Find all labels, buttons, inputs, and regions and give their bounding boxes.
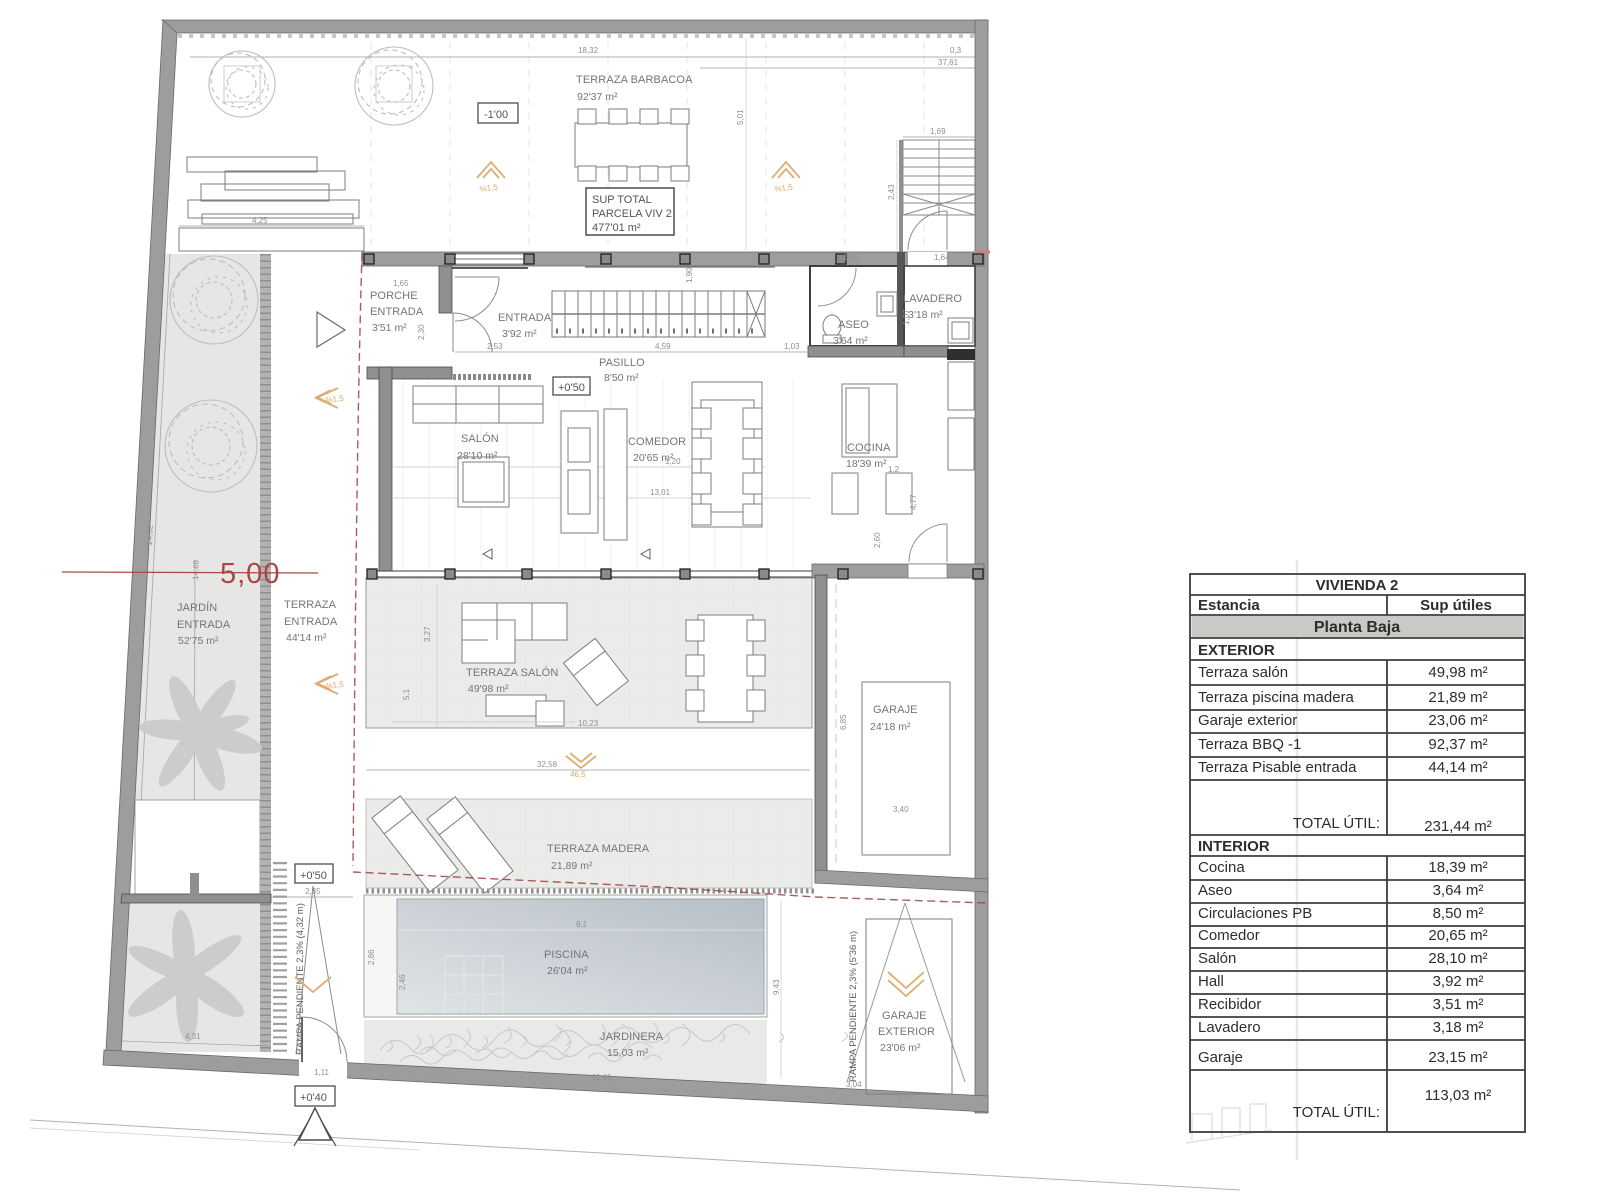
- svg-text:3,40: 3,40: [893, 805, 909, 814]
- svg-text:Terraza piscina madera: Terraza piscina madera: [1198, 689, 1355, 706]
- svg-text:Lavadero: Lavadero: [1198, 1019, 1261, 1036]
- svg-text:0,3: 0,3: [950, 46, 962, 55]
- svg-text:231,44 m²: 231,44 m²: [1424, 818, 1492, 835]
- svg-text:5,1: 5,1: [402, 688, 411, 700]
- svg-text:+0'50: +0'50: [300, 870, 327, 882]
- svg-text:Circulaciones PB: Circulaciones PB: [1198, 905, 1312, 922]
- svg-text:1,65: 1,65: [393, 279, 409, 288]
- svg-text:Terraza Pisable entrada: Terraza Pisable entrada: [1198, 759, 1357, 776]
- svg-text:VIVIENDA 2: VIVIENDA 2: [1316, 577, 1399, 594]
- svg-text:92,37 m²: 92,37 m²: [1428, 736, 1487, 753]
- svg-text:JARDINERA: JARDINERA: [600, 1031, 664, 1043]
- svg-text:18,32: 18,32: [578, 46, 599, 55]
- svg-text:SALÓN: SALÓN: [461, 432, 499, 445]
- svg-text:3,64 m²: 3,64 m²: [1433, 882, 1484, 899]
- svg-text:44'14 m²: 44'14 m²: [286, 632, 327, 644]
- svg-text:1,2: 1,2: [888, 465, 900, 474]
- svg-text:Sup útiles: Sup útiles: [1420, 597, 1492, 614]
- svg-text:6,85: 6,85: [839, 714, 848, 730]
- svg-text:5,00: 5,00: [220, 558, 280, 590]
- svg-text:18'39 m²: 18'39 m²: [846, 458, 887, 470]
- svg-text:3,18 m²: 3,18 m²: [1433, 1019, 1484, 1036]
- svg-text:24,02: 24,02: [145, 524, 155, 545]
- svg-text:3'18 m²: 3'18 m²: [908, 309, 943, 321]
- svg-text:TOTAL ÚTIL:: TOTAL ÚTIL:: [1293, 1104, 1380, 1121]
- svg-text:Garaje exterior: Garaje exterior: [1198, 712, 1297, 729]
- svg-text:3'92 m²: 3'92 m²: [502, 328, 537, 340]
- svg-text:2,97: 2,97: [898, 1093, 914, 1102]
- svg-text:3,27: 3,27: [423, 626, 432, 642]
- svg-text:Aseo: Aseo: [1198, 882, 1232, 899]
- svg-text:-1'00: -1'00: [484, 109, 508, 121]
- svg-text:2,86: 2,86: [367, 949, 376, 965]
- svg-text:Hall: Hall: [1198, 973, 1224, 990]
- svg-text:2,46: 2,46: [398, 974, 407, 990]
- svg-text:INTERIOR: INTERIOR: [1198, 838, 1270, 855]
- svg-text:28,10 m²: 28,10 m²: [1428, 950, 1487, 967]
- svg-text:11,41: 11,41: [592, 1073, 612, 1082]
- svg-text:EXTERIOR: EXTERIOR: [878, 1026, 935, 1038]
- svg-text:2,60: 2,60: [873, 532, 882, 548]
- svg-text:Estancia: Estancia: [1198, 597, 1260, 614]
- svg-text:Garaje: Garaje: [1198, 1049, 1243, 1066]
- svg-text:1,90: 1,90: [685, 267, 694, 283]
- svg-text:20'65 m²: 20'65 m²: [633, 452, 674, 464]
- svg-text:ENTRADA: ENTRADA: [284, 616, 338, 628]
- svg-text:TERRAZA BARBACOA: TERRAZA BARBACOA: [576, 74, 693, 86]
- svg-text:4,25: 4,25: [252, 216, 268, 225]
- svg-text:5,01: 5,01: [736, 109, 745, 125]
- svg-text:477'01 m²: 477'01 m²: [592, 222, 641, 234]
- svg-text:49,98 m²: 49,98 m²: [1428, 664, 1487, 681]
- svg-text:Comedor: Comedor: [1198, 927, 1260, 944]
- svg-text:2,35: 2,35: [305, 887, 321, 896]
- svg-text:TERRAZA MADERA: TERRAZA MADERA: [547, 843, 650, 855]
- svg-text:3,92 m²: 3,92 m²: [1433, 973, 1484, 990]
- svg-text:9,1: 9,1: [576, 920, 588, 929]
- svg-text:ENTRADA: ENTRADA: [498, 312, 552, 324]
- svg-text:Cocina: Cocina: [1198, 859, 1245, 876]
- svg-text:JARDÍN: JARDÍN: [177, 601, 217, 614]
- svg-text:52'75 m²: 52'75 m²: [178, 635, 219, 647]
- svg-text:3'51 m²: 3'51 m²: [372, 322, 407, 334]
- svg-text:23,06 m²: 23,06 m²: [1428, 712, 1487, 729]
- svg-text:GARAJE: GARAJE: [882, 1010, 927, 1022]
- svg-text:92'37 m²: 92'37 m²: [577, 91, 618, 103]
- svg-text:23'06 m²: 23'06 m²: [880, 1042, 921, 1054]
- svg-text:%1,5: %1,5: [325, 679, 345, 691]
- svg-text:LAVADERO: LAVADERO: [903, 293, 962, 305]
- svg-text:3,04: 3,04: [846, 1080, 862, 1089]
- svg-text:4,31: 4,31: [185, 1032, 201, 1041]
- svg-text:46,5: 46,5: [570, 770, 586, 779]
- svg-text:4,59: 4,59: [655, 342, 671, 351]
- svg-text:TOTAL ÚTIL:: TOTAL ÚTIL:: [1293, 815, 1380, 832]
- svg-text:10,23: 10,23: [578, 719, 599, 728]
- svg-text:37,61: 37,61: [938, 58, 959, 67]
- svg-text:1,07: 1,07: [902, 309, 911, 325]
- svg-text:2,43: 2,43: [887, 184, 896, 200]
- svg-text:+0'40: +0'40: [300, 1092, 327, 1104]
- svg-text:26'04 m²: 26'04 m²: [547, 965, 588, 977]
- svg-text:COMEDOR: COMEDOR: [628, 436, 686, 448]
- svg-text:1,03: 1,03: [784, 342, 800, 351]
- svg-text:%1,5: %1,5: [479, 182, 499, 194]
- svg-text:PORCHE: PORCHE: [370, 290, 418, 302]
- svg-text:32,58: 32,58: [537, 760, 558, 769]
- svg-text:4,77: 4,77: [909, 494, 918, 510]
- svg-text:23,15 m²: 23,15 m²: [1428, 1049, 1487, 1066]
- svg-text:28'10 m²: 28'10 m²: [457, 450, 498, 462]
- svg-text:Recibidor: Recibidor: [1198, 996, 1261, 1013]
- svg-text:49'98 m²: 49'98 m²: [468, 683, 509, 695]
- svg-text:8'50 m²: 8'50 m²: [604, 372, 639, 384]
- svg-text:GARAJE: GARAJE: [873, 704, 918, 716]
- svg-text:PISCINA: PISCINA: [544, 949, 589, 961]
- svg-text:1,69: 1,69: [930, 127, 946, 136]
- svg-text:1,64: 1,64: [934, 253, 950, 262]
- svg-text:%1,5: %1,5: [774, 182, 794, 194]
- svg-text:15,03 m²: 15,03 m²: [607, 1047, 649, 1059]
- svg-text:ENTRADA: ENTRADA: [370, 306, 424, 318]
- svg-text:3,51 m²: 3,51 m²: [1433, 996, 1484, 1013]
- svg-text:14,69: 14,69: [191, 559, 201, 580]
- svg-text:8,50 m²: 8,50 m²: [1433, 905, 1484, 922]
- svg-text:COCINA: COCINA: [847, 442, 891, 454]
- svg-text:RAMPA PENDIENTE 2,3% (5'36 m): RAMPA PENDIENTE 2,3% (5'36 m): [848, 931, 859, 1082]
- svg-text:20,65 m²: 20,65 m²: [1428, 927, 1487, 944]
- svg-text:%1,5: %1,5: [325, 393, 345, 405]
- svg-text:18,39 m²: 18,39 m²: [1428, 859, 1487, 876]
- svg-text:PARCELA VIV 2: PARCELA VIV 2: [592, 208, 672, 220]
- svg-text:13,01: 13,01: [650, 488, 671, 497]
- svg-text:TERRAZA: TERRAZA: [284, 599, 337, 611]
- svg-text:TERRAZA SALÓN: TERRAZA SALÓN: [466, 666, 558, 679]
- svg-text:3'64 m²: 3'64 m²: [833, 335, 868, 347]
- svg-text:113,03 m²: 113,03 m²: [1425, 1087, 1491, 1104]
- svg-text:9,43: 9,43: [772, 979, 781, 995]
- svg-text:Terraza salón: Terraza salón: [1198, 664, 1288, 681]
- svg-text:21,89 m²: 21,89 m²: [1428, 689, 1487, 706]
- svg-text:ASEO: ASEO: [838, 319, 869, 331]
- svg-text:21,89 m²: 21,89 m²: [551, 860, 593, 872]
- svg-text:Terraza BBQ -1: Terraza BBQ -1: [1198, 736, 1301, 753]
- svg-text:44,14 m²: 44,14 m²: [1428, 759, 1487, 776]
- svg-text:2,30: 2,30: [417, 324, 426, 340]
- svg-text:24'18 m²: 24'18 m²: [870, 721, 911, 733]
- svg-text:1,11: 1,11: [314, 1068, 330, 1077]
- svg-text:SUP TOTAL: SUP TOTAL: [592, 194, 652, 206]
- svg-text:ENTRADA: ENTRADA: [177, 619, 231, 631]
- svg-text:2,53: 2,53: [487, 342, 503, 351]
- svg-text:EXTERIOR: EXTERIOR: [1198, 642, 1275, 659]
- svg-text:+0'50: +0'50: [558, 382, 585, 394]
- svg-text:Salón: Salón: [1198, 950, 1236, 967]
- svg-text:1,95: 1,95: [843, 253, 859, 262]
- svg-text:PASILLO: PASILLO: [599, 357, 645, 369]
- svg-text:Planta Baja: Planta Baja: [1314, 619, 1400, 636]
